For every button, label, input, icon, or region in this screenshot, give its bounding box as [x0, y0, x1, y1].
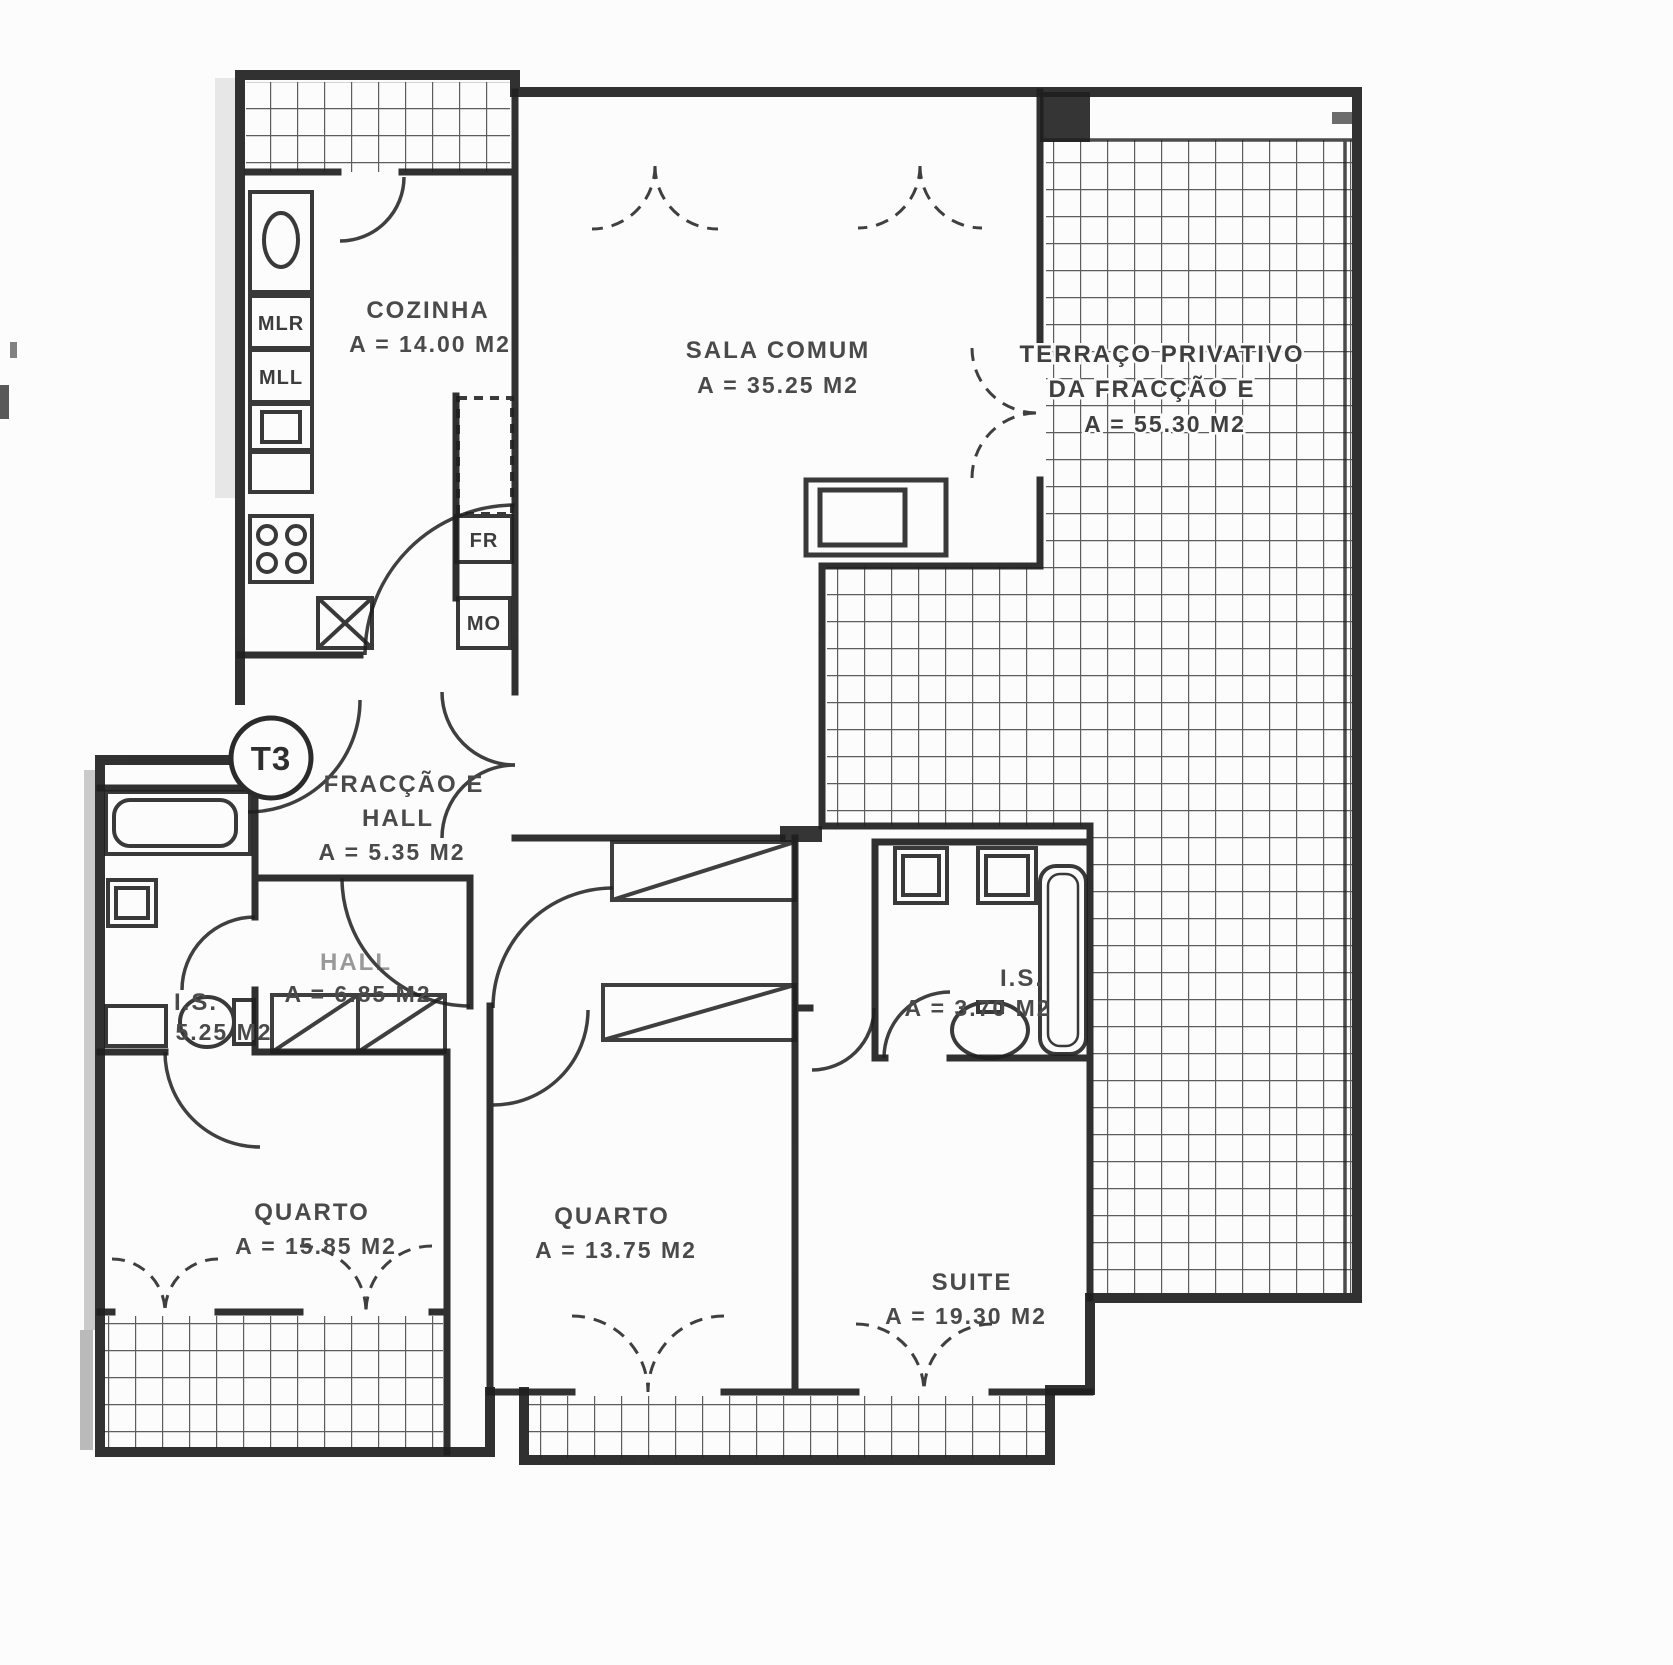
room-name: COZINHA [366, 297, 489, 324]
room-name-line1: TERRAÇO PRIVATIVO [1019, 341, 1304, 368]
kitchen-balcony-tiles [246, 82, 510, 172]
room-name: SUITE [932, 1269, 1013, 1296]
bedroom-balcony-left-tiles [104, 1316, 443, 1448]
bedroom-balcony-bottom-tiles [528, 1396, 1046, 1458]
room-name: HALL [362, 805, 434, 832]
room-name: QUARTO [254, 1199, 370, 1226]
oven-label: MO [467, 613, 501, 635]
room-area: A = 15.85 M2 [235, 1233, 397, 1259]
room-area: A = 55.30 M2 [1084, 411, 1246, 437]
floor-plan-drawing: T3 COZINHA A = 14.00 M2 SALA COMUM A = 3… [0, 0, 1673, 1665]
fraction-label: FRACÇÃO E [324, 770, 485, 798]
fridge-label: FR [470, 530, 499, 552]
room-area: A = 5.35 M2 [318, 839, 465, 865]
room-name: QUARTO [554, 1203, 670, 1230]
room-name-line2: DA FRACÇÃO E [1048, 375, 1255, 403]
room-name: I.S. [174, 989, 218, 1016]
room-area: A = 13.75 M2 [535, 1237, 697, 1263]
unit-type-badge: T3 [231, 718, 311, 798]
room-area: A = 35.25 M2 [697, 372, 859, 398]
dishwasher-label: MLL [259, 367, 303, 389]
room-name: I.S. [1000, 965, 1044, 992]
room-area: 5.25 M2 [175, 1019, 272, 1045]
washing-machine-label: MLR [258, 313, 304, 335]
room-name: HALL [320, 949, 392, 976]
room-area: A = 6.85 M2 [284, 981, 431, 1007]
unit-type-label: T3 [251, 740, 292, 777]
room-area: A = 14.00 M2 [349, 331, 511, 357]
room-area: A = 19.30 M2 [885, 1303, 1047, 1329]
room-name: SALA COMUM [686, 337, 870, 364]
floor-plan-page: T3 COZINHA A = 14.00 M2 SALA COMUM A = 3… [0, 0, 1673, 1665]
room-area: A = 3.70 M2 [904, 995, 1051, 1021]
